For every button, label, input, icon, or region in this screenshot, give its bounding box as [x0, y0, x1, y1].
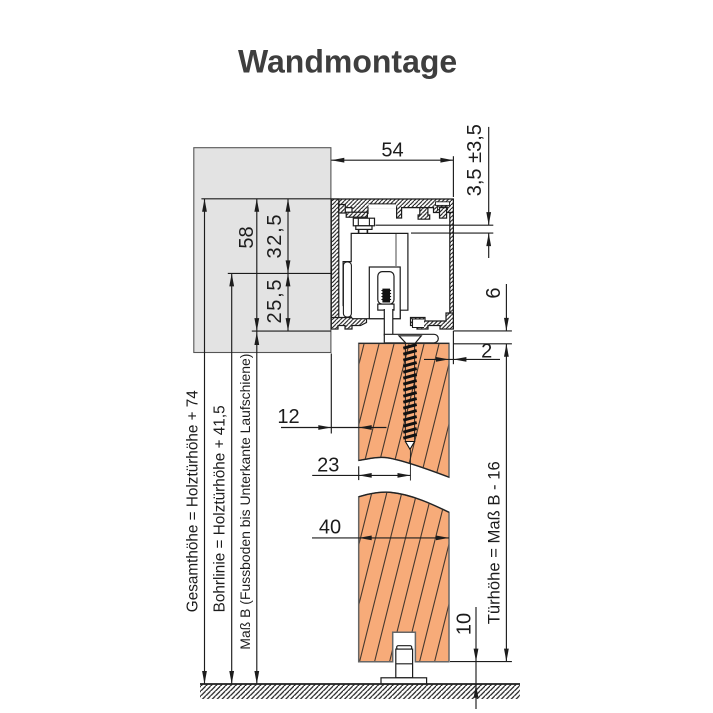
svg-text:Bohrlinie = Holztürhöhe + 41,5: Bohrlinie = Holztürhöhe + 41,5	[211, 405, 228, 612]
svg-text:54: 54	[381, 139, 403, 161]
svg-text:12: 12	[277, 406, 299, 428]
svg-text:2: 2	[481, 341, 492, 363]
svg-text:3,5 ±3,5: 3,5 ±3,5	[464, 124, 486, 196]
svg-text:58: 58	[236, 226, 258, 248]
svg-text:40: 40	[319, 517, 341, 539]
svg-text:23: 23	[317, 454, 339, 476]
svg-text:32,5: 32,5	[264, 215, 286, 259]
svg-text:Wandmontage: Wandmontage	[238, 44, 457, 80]
svg-text:Türhöhe = Maß B - 16: Türhöhe = Maß B - 16	[484, 461, 503, 624]
svg-text:Gesamthöhe = Holztürhöhe + 74: Gesamthöhe = Holztürhöhe + 74	[185, 390, 202, 612]
svg-text:25,5: 25,5	[264, 280, 286, 324]
svg-text:Maß B (Fussboden bis Unterkant: Maß B (Fussboden bis Unterkante Laufschi…	[237, 354, 253, 650]
svg-text:6: 6	[483, 287, 505, 298]
svg-text:10: 10	[454, 613, 476, 635]
